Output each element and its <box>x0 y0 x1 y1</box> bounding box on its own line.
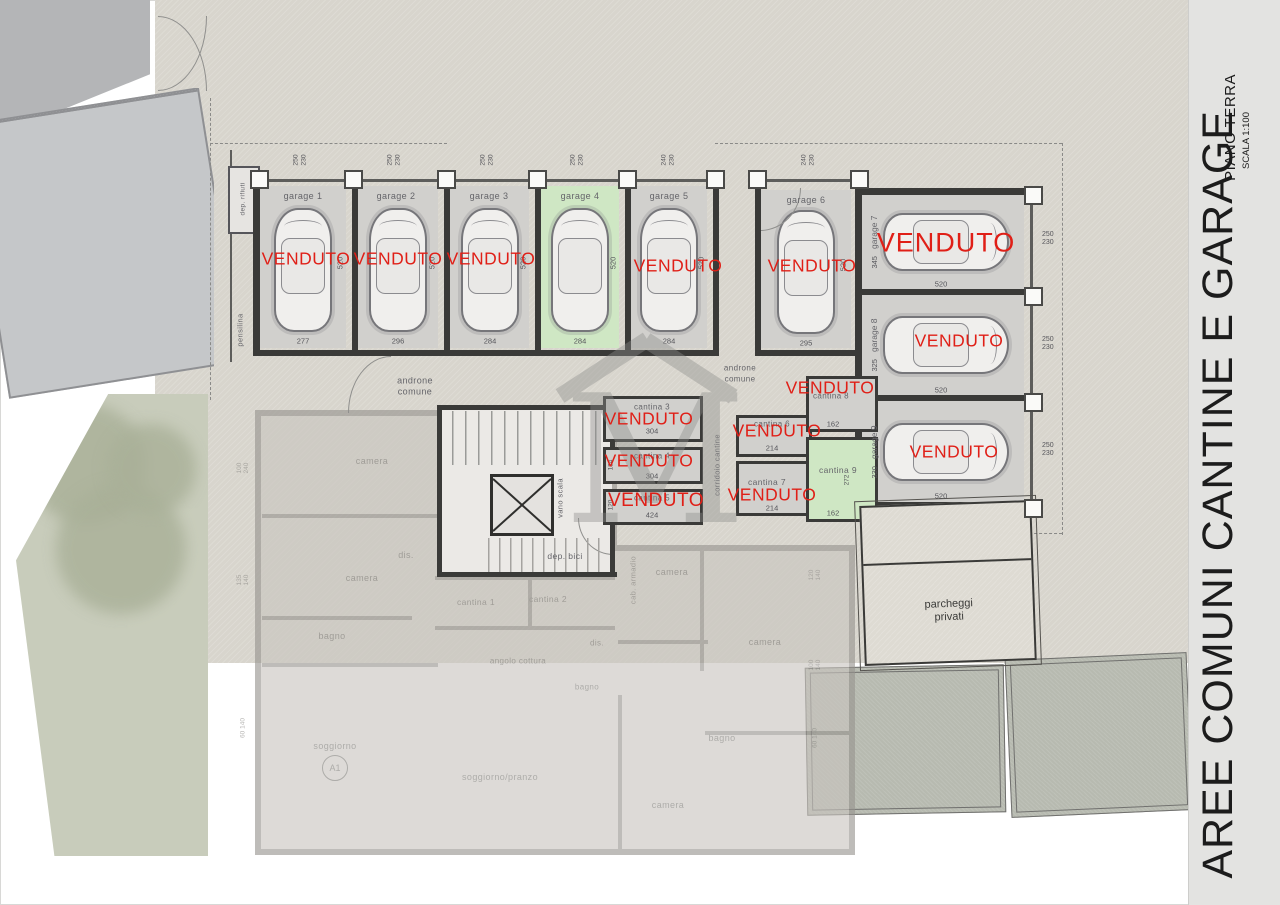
sold-stamp-garage-5: VENDUTO <box>634 256 723 277</box>
label-parcheggi-privati: parcheggi privati <box>909 597 990 626</box>
room-label-soggiorno-pranzo: soggiorno/pranzo <box>462 772 538 782</box>
garage-door-dim: 250 230 <box>1042 442 1064 458</box>
sold-stamp-garage-6: VENDUTO <box>768 256 857 277</box>
pillar <box>344 170 363 189</box>
garage-door-dim: 250 230 <box>1042 336 1064 352</box>
title-block-sidebar: AREE COMUNI CANTINE E GARAGE PIANO TERRA… <box>1188 0 1280 905</box>
room-label-soggiorno: soggiorno <box>313 741 356 751</box>
garage-4-available <box>541 186 619 348</box>
garage-name: garage 4 <box>561 191 600 201</box>
garage-floor-dim: 520 <box>935 280 948 289</box>
boundary-dashed <box>715 143 1062 144</box>
garage-door-dim: 240 230 <box>661 149 676 171</box>
private-parking-box: parcheggi privati <box>859 500 1036 666</box>
bike-storage-hatch <box>488 538 604 572</box>
window-dim: 100 140 <box>808 654 822 676</box>
garage-floor-dim: 520 <box>935 492 948 501</box>
sold-stamp-cantina-5: VENDUTO <box>608 490 704 512</box>
pillar <box>1024 393 1043 412</box>
wall <box>755 350 862 356</box>
room-label-dis: dis. <box>590 639 604 648</box>
apartment-wall <box>255 410 261 855</box>
garage-floor-dim: 277 <box>297 337 310 346</box>
label-pensilina: pensilina <box>236 313 245 346</box>
garage-door-dim: 250 230 <box>570 149 585 171</box>
room-label-camera: camera <box>356 456 388 466</box>
wall <box>861 395 1026 401</box>
room-label-camera: camera <box>652 800 684 810</box>
wall <box>437 405 617 410</box>
garage-depth-dim: 520 <box>609 257 618 270</box>
sold-stamp-garage-8: VENDUTO <box>915 331 1004 352</box>
pillar <box>706 170 725 189</box>
apartment-wall <box>262 616 412 620</box>
pillar <box>618 170 637 189</box>
sold-stamp-cantina-4: VENDUTO <box>605 451 694 472</box>
boundary-dashed <box>210 98 211 400</box>
apartment-floor <box>610 545 855 855</box>
staircase <box>452 411 606 465</box>
room-label-bagno: bagno <box>575 683 599 692</box>
apartment-wall <box>262 663 438 667</box>
room-label-cantina-2: cantina 2 <box>529 594 567 604</box>
garage-name: garage 3 <box>470 191 509 201</box>
sold-stamp-cantina-3: VENDUTO <box>605 409 694 430</box>
unit-badge: A1 <box>322 755 348 781</box>
apartment-wall <box>849 545 855 855</box>
car-icon <box>461 208 519 332</box>
wall <box>253 178 260 356</box>
wall <box>253 350 719 356</box>
garage-door-line <box>761 179 855 182</box>
garage-length-dim: 325 <box>870 359 879 372</box>
room-label-camera: camera <box>656 567 688 577</box>
room-label-camera: camera <box>346 573 378 583</box>
apartment-wall <box>611 545 855 551</box>
room-label-angolo-cottura: angolo cottura <box>490 657 546 666</box>
garage-door-line <box>1030 195 1033 502</box>
wall <box>861 289 1026 295</box>
label-androne-comune: androne comune <box>713 364 767 385</box>
garage-name: garage 5 <box>650 191 689 201</box>
garage-name: 325garage 8 <box>869 318 879 371</box>
pillar <box>437 170 456 189</box>
sold-stamp-cantina-7: VENDUTO <box>728 485 817 506</box>
window-dim: 100 240 <box>236 457 250 479</box>
garage-door-line <box>260 179 713 182</box>
room-label-bagno: bagno <box>318 631 345 641</box>
floor-plan-page: camera camera dis. bagno soggiorno soggi… <box>0 0 1280 905</box>
parking-divider-line <box>863 558 1031 565</box>
garage-door-dim: 240 230 <box>801 149 816 171</box>
apartment-wall <box>618 640 708 644</box>
pillar <box>1024 287 1043 306</box>
cantina-dim: 304 <box>646 472 659 481</box>
pillar <box>748 170 767 189</box>
room-label-cab-armadio: cab. armadio <box>629 556 638 604</box>
garage-name: garage 2 <box>377 191 416 201</box>
wall <box>755 183 761 353</box>
apartment-wall <box>255 849 855 855</box>
label-corridoio-cantine: corridoio cantine <box>713 434 722 496</box>
label-vano-scala: vano scala <box>556 478 565 518</box>
room-label-dis: dis. <box>398 550 414 560</box>
window-dim: 60 140 <box>240 717 247 739</box>
sold-stamp-cantina-8: VENDUTO <box>786 378 875 399</box>
elevator-shaft <box>490 474 554 536</box>
pillar <box>250 170 269 189</box>
wall <box>625 181 631 353</box>
cantina-name: cantina 9 <box>819 465 857 475</box>
plan-floor-label: PIANO TERRA <box>1222 74 1239 181</box>
pillar <box>850 170 869 189</box>
label-dep-rifiuti: dep. rifiuti <box>240 183 247 216</box>
garage-floor-dim: 284 <box>663 337 676 346</box>
label-dep-bici: dep. bici <box>547 551 582 561</box>
garage-door-dim: 250 230 <box>480 149 495 171</box>
plan-title: AREE COMUNI CANTINE E GARAGE <box>1194 110 1243 879</box>
garage-floor-dim: 284 <box>574 337 587 346</box>
sold-stamp-garage-3: VENDUTO <box>447 249 536 270</box>
window-dim: 120 140 <box>808 564 822 586</box>
wall <box>437 405 442 577</box>
window-dim: 60 140 <box>812 727 819 749</box>
room-label-cantina-1: cantina 1 <box>457 597 495 607</box>
plan-scale-label: SCALA 1:100 <box>1241 112 1252 169</box>
apartment-wall <box>700 551 704 671</box>
wall <box>855 188 1035 195</box>
apartment-wall <box>618 695 622 853</box>
garage-floor-dim: 295 <box>800 339 813 348</box>
garage-floor-dim: 284 <box>484 337 497 346</box>
garage-name: garage 6 <box>787 195 826 205</box>
pillar <box>1024 499 1043 518</box>
wall <box>437 572 617 577</box>
room-label-bagno: bagno <box>708 733 735 743</box>
cantina-side-dim: 272 <box>844 475 851 486</box>
garage-name: garage 1 <box>284 191 323 201</box>
garage-floor-dim: 296 <box>392 337 405 346</box>
window-dim: 135 140 <box>236 569 250 591</box>
garage-door-dim: 250 230 <box>293 149 308 171</box>
garage-name: 330garage 9 <box>869 425 879 478</box>
room-label-camera: camera <box>749 637 781 647</box>
sold-stamp-garage-7: VENDUTO <box>877 228 1016 259</box>
cantina-dim: 214 <box>766 444 779 453</box>
cantina-dim: 162 <box>827 509 840 518</box>
garage-length-dim: 330 <box>870 466 879 479</box>
garage-door-dim: 250 230 <box>387 149 402 171</box>
label-androne-comune: androne comune <box>388 376 442 397</box>
pillar <box>1024 186 1043 205</box>
sold-stamp-garage-9: VENDUTO <box>910 442 999 463</box>
boundary-dashed <box>210 143 447 144</box>
sold-stamp-cantina-6: VENDUTO <box>733 421 822 442</box>
car-icon <box>369 208 427 332</box>
car-icon <box>551 208 609 332</box>
sold-stamp-garage-2: VENDUTO <box>354 249 443 270</box>
garage-floor-dim: 520 <box>935 386 948 395</box>
car-icon <box>274 208 332 332</box>
cantina-dim: 162 <box>827 420 840 429</box>
wall <box>535 181 541 353</box>
apartment-wall <box>262 514 438 518</box>
garage-door-dim: 250 230 <box>1042 231 1064 247</box>
apartment-wall <box>435 626 615 630</box>
pillar <box>528 170 547 189</box>
sold-stamp-garage-1: VENDUTO <box>262 249 351 270</box>
